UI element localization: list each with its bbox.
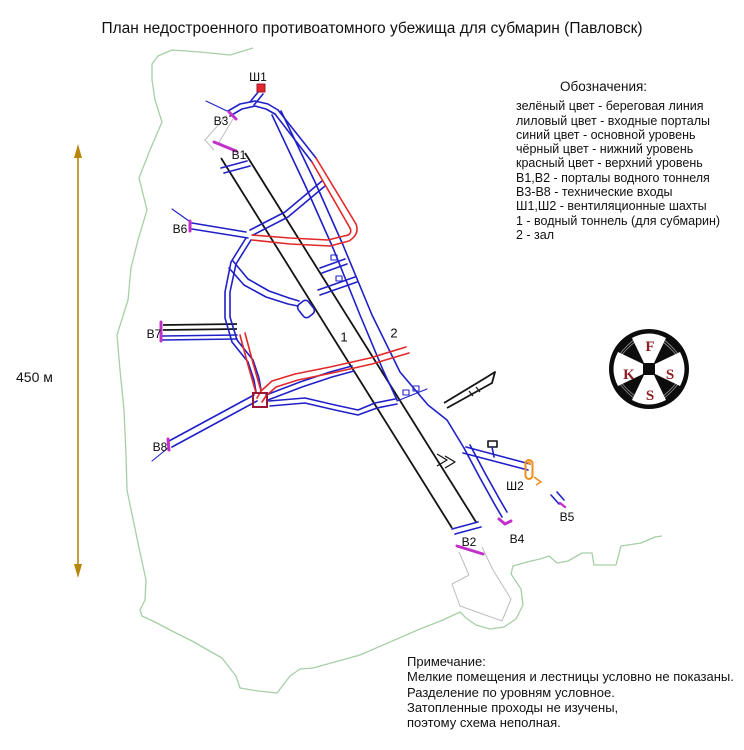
label-sh2: Ш2 — [506, 479, 524, 493]
entrance-portals — [161, 112, 565, 554]
logo-letter-s-bottom: S — [646, 388, 654, 404]
label-tunnel-1: 1 — [340, 330, 347, 345]
map-page: F K S S План недостроенного противоатомн… — [0, 0, 744, 750]
note-line: поэтому схема неполная. — [407, 715, 737, 730]
label-v8: В8 — [153, 440, 168, 454]
legend-item: красный цвет - верхний уровень — [516, 156, 744, 170]
junction-box — [253, 393, 267, 407]
main-level-tunnels — [152, 91, 564, 534]
logo-letter-k: K — [623, 367, 635, 383]
label-v4: В4 — [510, 532, 525, 546]
legend-item: зелёный цвет - береговая линия — [516, 99, 744, 113]
legend: Обозначения: зелёный цвет - береговая ли… — [516, 80, 744, 242]
label-v7: В7 — [147, 327, 162, 341]
logo-letter-f: F — [645, 339, 654, 355]
label-v2: В2 — [462, 535, 477, 549]
legend-item: лиловый цвет - входные порталы — [516, 114, 744, 128]
note-line: Разделение по уровням условное. — [407, 685, 737, 700]
kfss-logo: F K S S — [609, 329, 689, 409]
note-line: Мелкие помещения и лестницы условно не п… — [407, 669, 737, 684]
logo-letter-s-right: S — [666, 367, 674, 383]
label-v5: В5 — [560, 510, 575, 524]
label-v3: В3 — [214, 114, 229, 128]
upper-level-tunnels — [240, 84, 409, 402]
legend-item: чёрный цвет - нижний уровень — [516, 142, 744, 156]
notes-heading: Примечание: — [407, 654, 737, 669]
legend-heading: Обозначения: — [560, 80, 744, 94]
legend-item: В1,В2 - порталы водного тоннеля — [516, 171, 744, 185]
legend-item: 1 - водный тоннель (для субмарин) — [516, 214, 744, 228]
scale-arrow — [74, 144, 82, 578]
vent-shaft-marks — [526, 460, 542, 485]
note-line: Затопленные проходы не изучены, — [407, 700, 737, 715]
label-hall-2: 2 — [390, 326, 397, 341]
lower-level-tunnels — [163, 153, 497, 528]
page-title: План недостроенного противоатомного убеж… — [0, 20, 744, 38]
label-v6: В6 — [173, 222, 188, 236]
label-sh1: Ш1 — [249, 70, 267, 84]
legend-item: Ш1,Ш2 - вентиляционные шахты — [516, 199, 744, 213]
notes-block: Примечание: Мелкие помещения и лестницы … — [407, 654, 737, 730]
legend-item: 2 - зал — [516, 228, 744, 242]
legend-item: синий цвет - основной уровень — [516, 128, 744, 142]
label-v1: В1 — [232, 148, 247, 162]
legend-item: В3-В8 - технические входы — [516, 185, 744, 199]
scale-label: 450 м — [16, 369, 64, 385]
